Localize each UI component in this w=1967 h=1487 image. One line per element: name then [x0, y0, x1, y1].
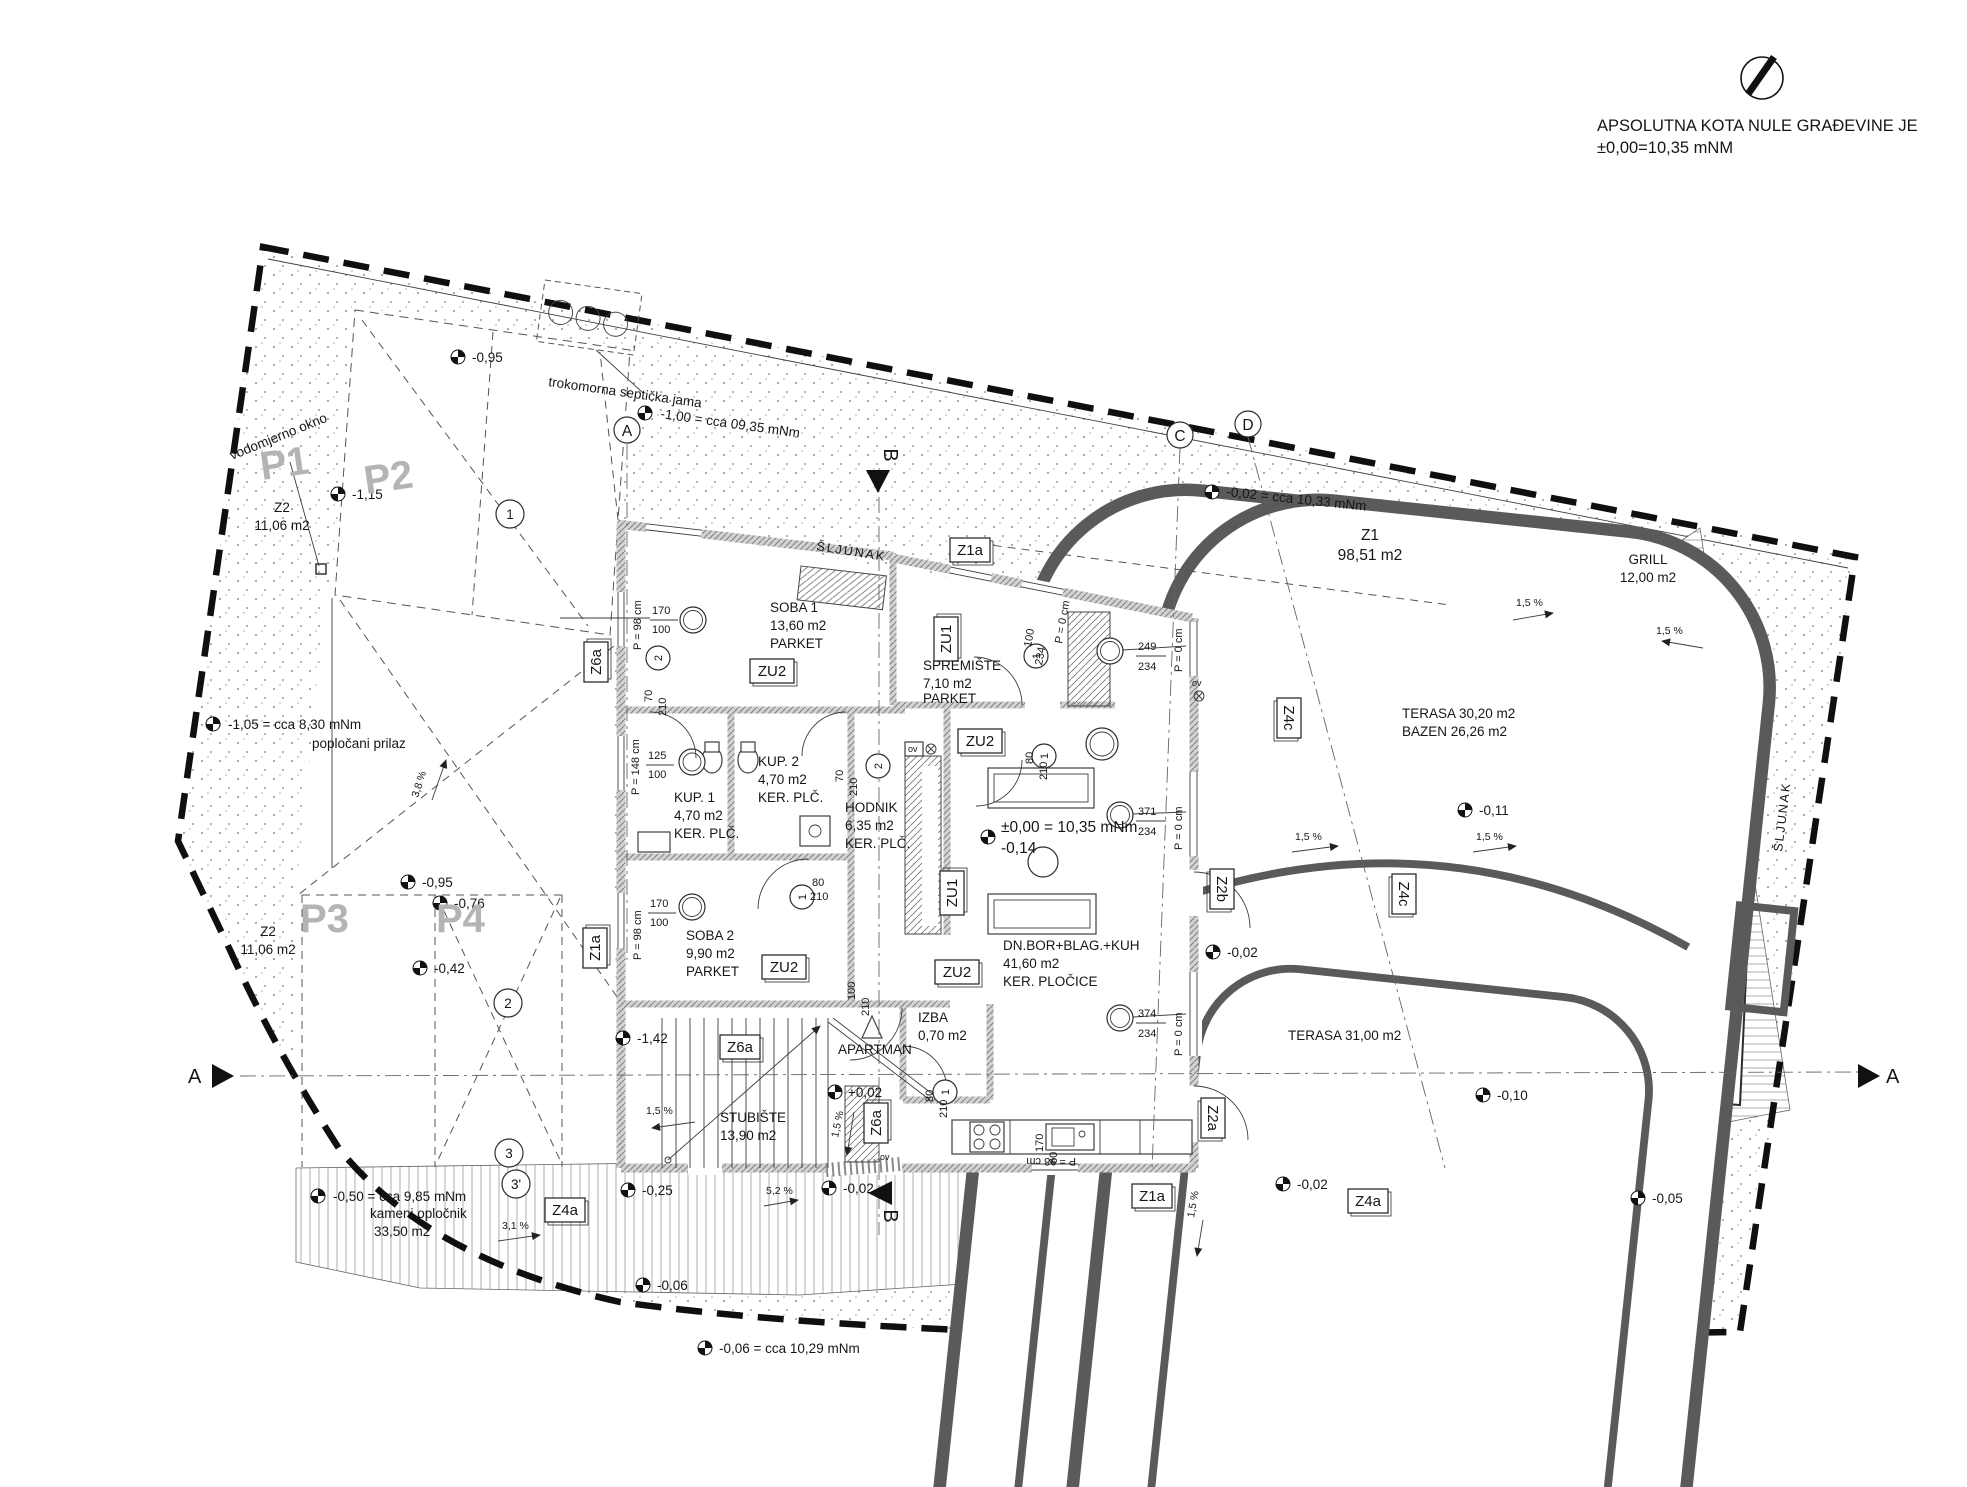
- svg-text:-0,02: -0,02: [1297, 1177, 1328, 1192]
- svg-text:100: 100: [652, 624, 670, 636]
- svg-text:1: 1: [940, 1089, 952, 1095]
- tag-z2b: Z2b: [1207, 869, 1234, 912]
- svg-text:KER. PLOČICE: KER. PLOČICE: [1003, 974, 1098, 989]
- svg-text:-0,42: -0,42: [434, 961, 465, 976]
- svg-text:210: 210: [810, 891, 828, 903]
- svg-text:13,60 m2: 13,60 m2: [770, 618, 826, 633]
- svg-text:A: A: [622, 423, 633, 440]
- svg-text:2: 2: [504, 996, 512, 1011]
- tag-z1a: Z1a: [583, 925, 610, 968]
- svg-text:170: 170: [1034, 1134, 1046, 1152]
- tag-zu2: ZU2: [935, 960, 982, 987]
- svg-text:3: 3: [505, 1146, 513, 1161]
- svg-text:Z1a: Z1a: [957, 542, 984, 559]
- svg-text:IZBA: IZBA: [918, 1010, 948, 1025]
- svg-text:80: 80: [1024, 752, 1036, 764]
- svg-text:-1,05 = cca 8,30 mNm: -1,05 = cca 8,30 mNm: [228, 717, 361, 732]
- zone-z2-area: 11,06 m2: [240, 942, 295, 957]
- svg-text:170: 170: [650, 898, 668, 910]
- svg-text:Z4a: Z4a: [552, 1202, 579, 1219]
- section-marker-d: D: [1235, 411, 1261, 437]
- stall-p2: P2: [361, 453, 416, 503]
- svg-text:374: 374: [1138, 1008, 1156, 1020]
- svg-text:371: 371: [1138, 806, 1156, 818]
- tag-z6a: Z6a: [864, 1100, 891, 1143]
- section-marker-a-top: A: [614, 417, 640, 443]
- svg-text:-0,06: -0,06: [657, 1278, 688, 1293]
- svg-text:P = 0 cm: P = 0 cm: [1173, 1012, 1185, 1056]
- svg-text:210: 210: [938, 1100, 950, 1118]
- svg-text:125: 125: [648, 750, 666, 762]
- svg-text:-0,02: -0,02: [1227, 945, 1258, 960]
- svg-text:B: B: [879, 448, 901, 461]
- zone-z1-area: 98,51 m2: [1338, 547, 1403, 564]
- svg-text:3': 3': [511, 1177, 521, 1192]
- zone-z1-code: Z1: [1361, 527, 1379, 544]
- tag-z4a: Z4a: [1348, 1189, 1391, 1216]
- tag-z1a: Z1a: [950, 538, 993, 565]
- svg-text:D: D: [1242, 417, 1253, 434]
- toilet: [702, 742, 722, 773]
- tag-zu1: ZU1: [934, 614, 961, 661]
- stall-p3: P3: [300, 897, 349, 941]
- svg-text:210: 210: [657, 698, 669, 716]
- svg-text:P = 98 cm: P = 98 cm: [632, 600, 644, 650]
- house: [613, 520, 1250, 1175]
- svg-text:SPREMIŠTE: SPREMIŠTE: [923, 658, 1001, 673]
- svg-text:ZU2: ZU2: [770, 959, 798, 976]
- section-marker-a-left: A: [188, 1064, 234, 1088]
- svg-text:HODNIK: HODNIK: [845, 800, 898, 815]
- svg-text:KUP. 1: KUP. 1: [674, 790, 715, 805]
- svg-text:P = 98 cm: P = 98 cm: [632, 910, 644, 960]
- note-line2: ±0,00=10,35 mNM: [1597, 139, 1733, 157]
- svg-text:100: 100: [846, 982, 858, 1000]
- floor-plan-svg: A B C D A A B 1 2 3 3' 2: [0, 0, 1967, 1487]
- svg-text:+0,02: +0,02: [848, 1085, 882, 1100]
- svg-text:70: 70: [643, 690, 655, 702]
- svg-text:Z1a: Z1a: [587, 934, 604, 961]
- svg-text:Z2a: Z2a: [1204, 1105, 1221, 1132]
- tag-z4c: Z4c: [1389, 874, 1416, 917]
- room-label-apartman: APARTMAN: [838, 1042, 912, 1057]
- svg-text:1,5 %: 1,5 %: [1476, 831, 1503, 843]
- svg-text:2: 2: [873, 763, 885, 769]
- tag-z1a: Z1a: [1132, 1184, 1175, 1211]
- svg-text:Z6a: Z6a: [727, 1039, 754, 1056]
- svg-text:170: 170: [652, 605, 670, 617]
- svg-text:234: 234: [1138, 1028, 1156, 1040]
- svg-text:1: 1: [506, 507, 514, 522]
- tag-z4a: Z4a: [545, 1198, 588, 1225]
- toilet: [738, 742, 758, 773]
- stove: [970, 1122, 1004, 1152]
- room-label-soba2: SOBA 29,90 m2PARKET: [686, 928, 739, 979]
- svg-text:KER. PLČ.: KER. PLČ.: [674, 826, 739, 841]
- svg-text:1,5 %: 1,5 %: [1295, 831, 1322, 843]
- zone-z2-code: Z2: [260, 924, 276, 939]
- svg-text:SOBA 2: SOBA 2: [686, 928, 734, 943]
- svg-text:±0,00 = 10,35 mNm: ±0,00 = 10,35 mNm: [1001, 819, 1137, 836]
- svg-text:210: 210: [860, 998, 872, 1016]
- svg-text:-0,06 = cca 10,29 mNm: -0,06 = cca 10,29 mNm: [719, 1341, 860, 1356]
- stall-p1: P1: [257, 439, 312, 489]
- svg-text:1,5 %: 1,5 %: [646, 1105, 673, 1117]
- svg-text:-1,42: -1,42: [637, 1031, 668, 1046]
- svg-text:P = 0 cm: P = 0 cm: [1173, 628, 1185, 672]
- svg-text:-0,25: -0,25: [642, 1183, 673, 1198]
- svg-text:2: 2: [653, 655, 665, 661]
- ov-label: ov: [880, 1152, 890, 1162]
- kameni-area: 33,50 m2: [374, 1224, 430, 1239]
- svg-text:ZU1: ZU1: [938, 625, 955, 653]
- grill-label: GRILL: [1628, 552, 1668, 567]
- svg-text:ZU1: ZU1: [944, 879, 961, 907]
- kameni-label: kameni opločnik: [370, 1206, 467, 1221]
- tag-zu1: ZU1: [940, 868, 967, 915]
- svg-text:DN.BOR+BLAG.+KUH: DN.BOR+BLAG.+KUH: [1003, 938, 1140, 953]
- svg-text:KER. PLČ.: KER. PLČ.: [758, 790, 823, 805]
- svg-text:KER. PLČ.: KER. PLČ.: [845, 836, 910, 851]
- svg-text:3,1 %: 3,1 %: [502, 1220, 529, 1232]
- bazen-label: BAZEN 26,26 m2: [1402, 724, 1507, 739]
- svg-text:234: 234: [1138, 661, 1156, 673]
- svg-text:Z1a: Z1a: [1139, 1188, 1166, 1205]
- note-line1: APSOLUTNA KOTA NULE GRAĐEVINE JE: [1597, 117, 1918, 135]
- svg-text:Z4c: Z4c: [1280, 705, 1297, 731]
- tag-zu2: ZU2: [762, 955, 809, 982]
- svg-text:PARKET: PARKET: [770, 636, 823, 651]
- svg-text:Z2b: Z2b: [1213, 876, 1230, 902]
- svg-text:P = 148 cm: P = 148 cm: [630, 739, 642, 795]
- svg-text:6,35 m2: 6,35 m2: [845, 818, 894, 833]
- sink: [1046, 1124, 1094, 1150]
- svg-text:Z6a: Z6a: [588, 648, 605, 675]
- shaft: [905, 742, 941, 934]
- svg-text:Z4c: Z4c: [1395, 881, 1412, 907]
- svg-text:249: 249: [1138, 641, 1156, 653]
- tag-zu2: ZU2: [958, 729, 1005, 756]
- svg-text:B: B: [879, 1209, 901, 1222]
- floor-plan-page: A B C D A A B 1 2 3 3' 2: [0, 0, 1967, 1487]
- svg-text:Z6a: Z6a: [868, 1109, 885, 1136]
- svg-text:4,70 m2: 4,70 m2: [758, 772, 807, 787]
- poplocani-label: popločani prilaz: [312, 736, 406, 751]
- section-marker-a-right: A: [1858, 1064, 1900, 1088]
- svg-text:KUP. 2: KUP. 2: [758, 754, 799, 769]
- svg-text:1,5 %: 1,5 %: [1516, 597, 1543, 609]
- svg-text:Z4a: Z4a: [1355, 1193, 1382, 1210]
- tag-z4c: Z4c: [1274, 698, 1301, 741]
- svg-text:ZU2: ZU2: [966, 733, 994, 750]
- svg-text:-0,02: -0,02: [843, 1181, 874, 1196]
- svg-text:-0,05: -0,05: [1652, 1191, 1683, 1206]
- stall-p4: P4: [436, 897, 486, 941]
- svg-text:A: A: [188, 1066, 202, 1088]
- terasa-lower-label: TERASA 31,00 m2: [1288, 1028, 1401, 1043]
- svg-text:PARKET: PARKET: [923, 691, 976, 706]
- svg-text:-0,14: -0,14: [1001, 840, 1037, 857]
- svg-text:-0,95: -0,95: [472, 350, 503, 365]
- zone-z2-area: 11,06 m2: [254, 518, 309, 533]
- svg-text:7,10 m2: 7,10 m2: [923, 676, 972, 691]
- kitchen: [952, 1120, 1192, 1154]
- north-arrow-icon: [1741, 57, 1783, 99]
- grill-area: 12,00 m2: [1620, 570, 1676, 585]
- svg-text:ZU2: ZU2: [758, 663, 786, 680]
- tag-z6a: Z6a: [584, 639, 611, 682]
- washer: [638, 832, 670, 852]
- zone-z2-code: Z2: [274, 500, 290, 515]
- svg-text:ZU2: ZU2: [943, 964, 971, 981]
- svg-text:-0,95: -0,95: [422, 875, 453, 890]
- svg-text:1: 1: [1039, 753, 1051, 759]
- svg-text:PARKET: PARKET: [686, 964, 739, 979]
- shower: [800, 816, 830, 846]
- absolute-elevation-note: APSOLUTNA KOTA NULE GRAĐEVINE JE ±0,00=1…: [1597, 117, 1918, 157]
- svg-text:80: 80: [924, 1090, 936, 1102]
- svg-text:STUBIŠTE: STUBIŠTE: [720, 1110, 786, 1125]
- tag-zu2: ZU2: [750, 659, 797, 686]
- svg-text:A: A: [1886, 1066, 1900, 1088]
- svg-text:210: 210: [1038, 762, 1050, 780]
- svg-text:C: C: [1174, 428, 1185, 445]
- svg-text:234: 234: [1138, 826, 1156, 838]
- svg-text:SOBA 1: SOBA 1: [770, 600, 818, 615]
- svg-text:5,2 %: 5,2 %: [766, 1185, 793, 1197]
- tag-z6a: Z6a: [720, 1035, 763, 1062]
- svg-text:80: 80: [812, 877, 824, 889]
- svg-text:1: 1: [797, 894, 809, 900]
- ov-label: ov: [1192, 678, 1202, 688]
- svg-text:100: 100: [648, 769, 666, 781]
- svg-text:1,5 %: 1,5 %: [1656, 625, 1683, 637]
- svg-text:100: 100: [650, 917, 668, 929]
- tag-z2a: Z2a: [1198, 1098, 1225, 1141]
- svg-text:0,70 m2: 0,70 m2: [918, 1028, 967, 1043]
- section-marker-c: C: [1167, 422, 1193, 448]
- svg-text:4,70 m2: 4,70 m2: [674, 808, 723, 823]
- svg-text:-0,50 = cca 9,85 mNm: -0,50 = cca 9,85 mNm: [333, 1189, 466, 1204]
- svg-text:-0,11: -0,11: [1479, 803, 1509, 818]
- svg-text:13,90 m2: 13,90 m2: [720, 1128, 776, 1143]
- room-label-soba1: SOBA 113,60 m2PARKET: [770, 600, 826, 651]
- svg-text:9,90 m2: 9,90 m2: [686, 946, 735, 961]
- svg-text:P = 0 cm: P = 0 cm: [1173, 806, 1185, 850]
- svg-text:P = 98 cm: P = 98 cm: [1026, 1155, 1076, 1167]
- svg-text:210: 210: [848, 778, 860, 796]
- ov-label: ov: [908, 744, 918, 754]
- svg-text:-0,10: -0,10: [1497, 1088, 1528, 1103]
- svg-text:41,60 m2: 41,60 m2: [1003, 956, 1059, 971]
- svg-text:70: 70: [834, 770, 846, 782]
- terasa-upper-label: TERASA 30,20 m2: [1402, 706, 1515, 721]
